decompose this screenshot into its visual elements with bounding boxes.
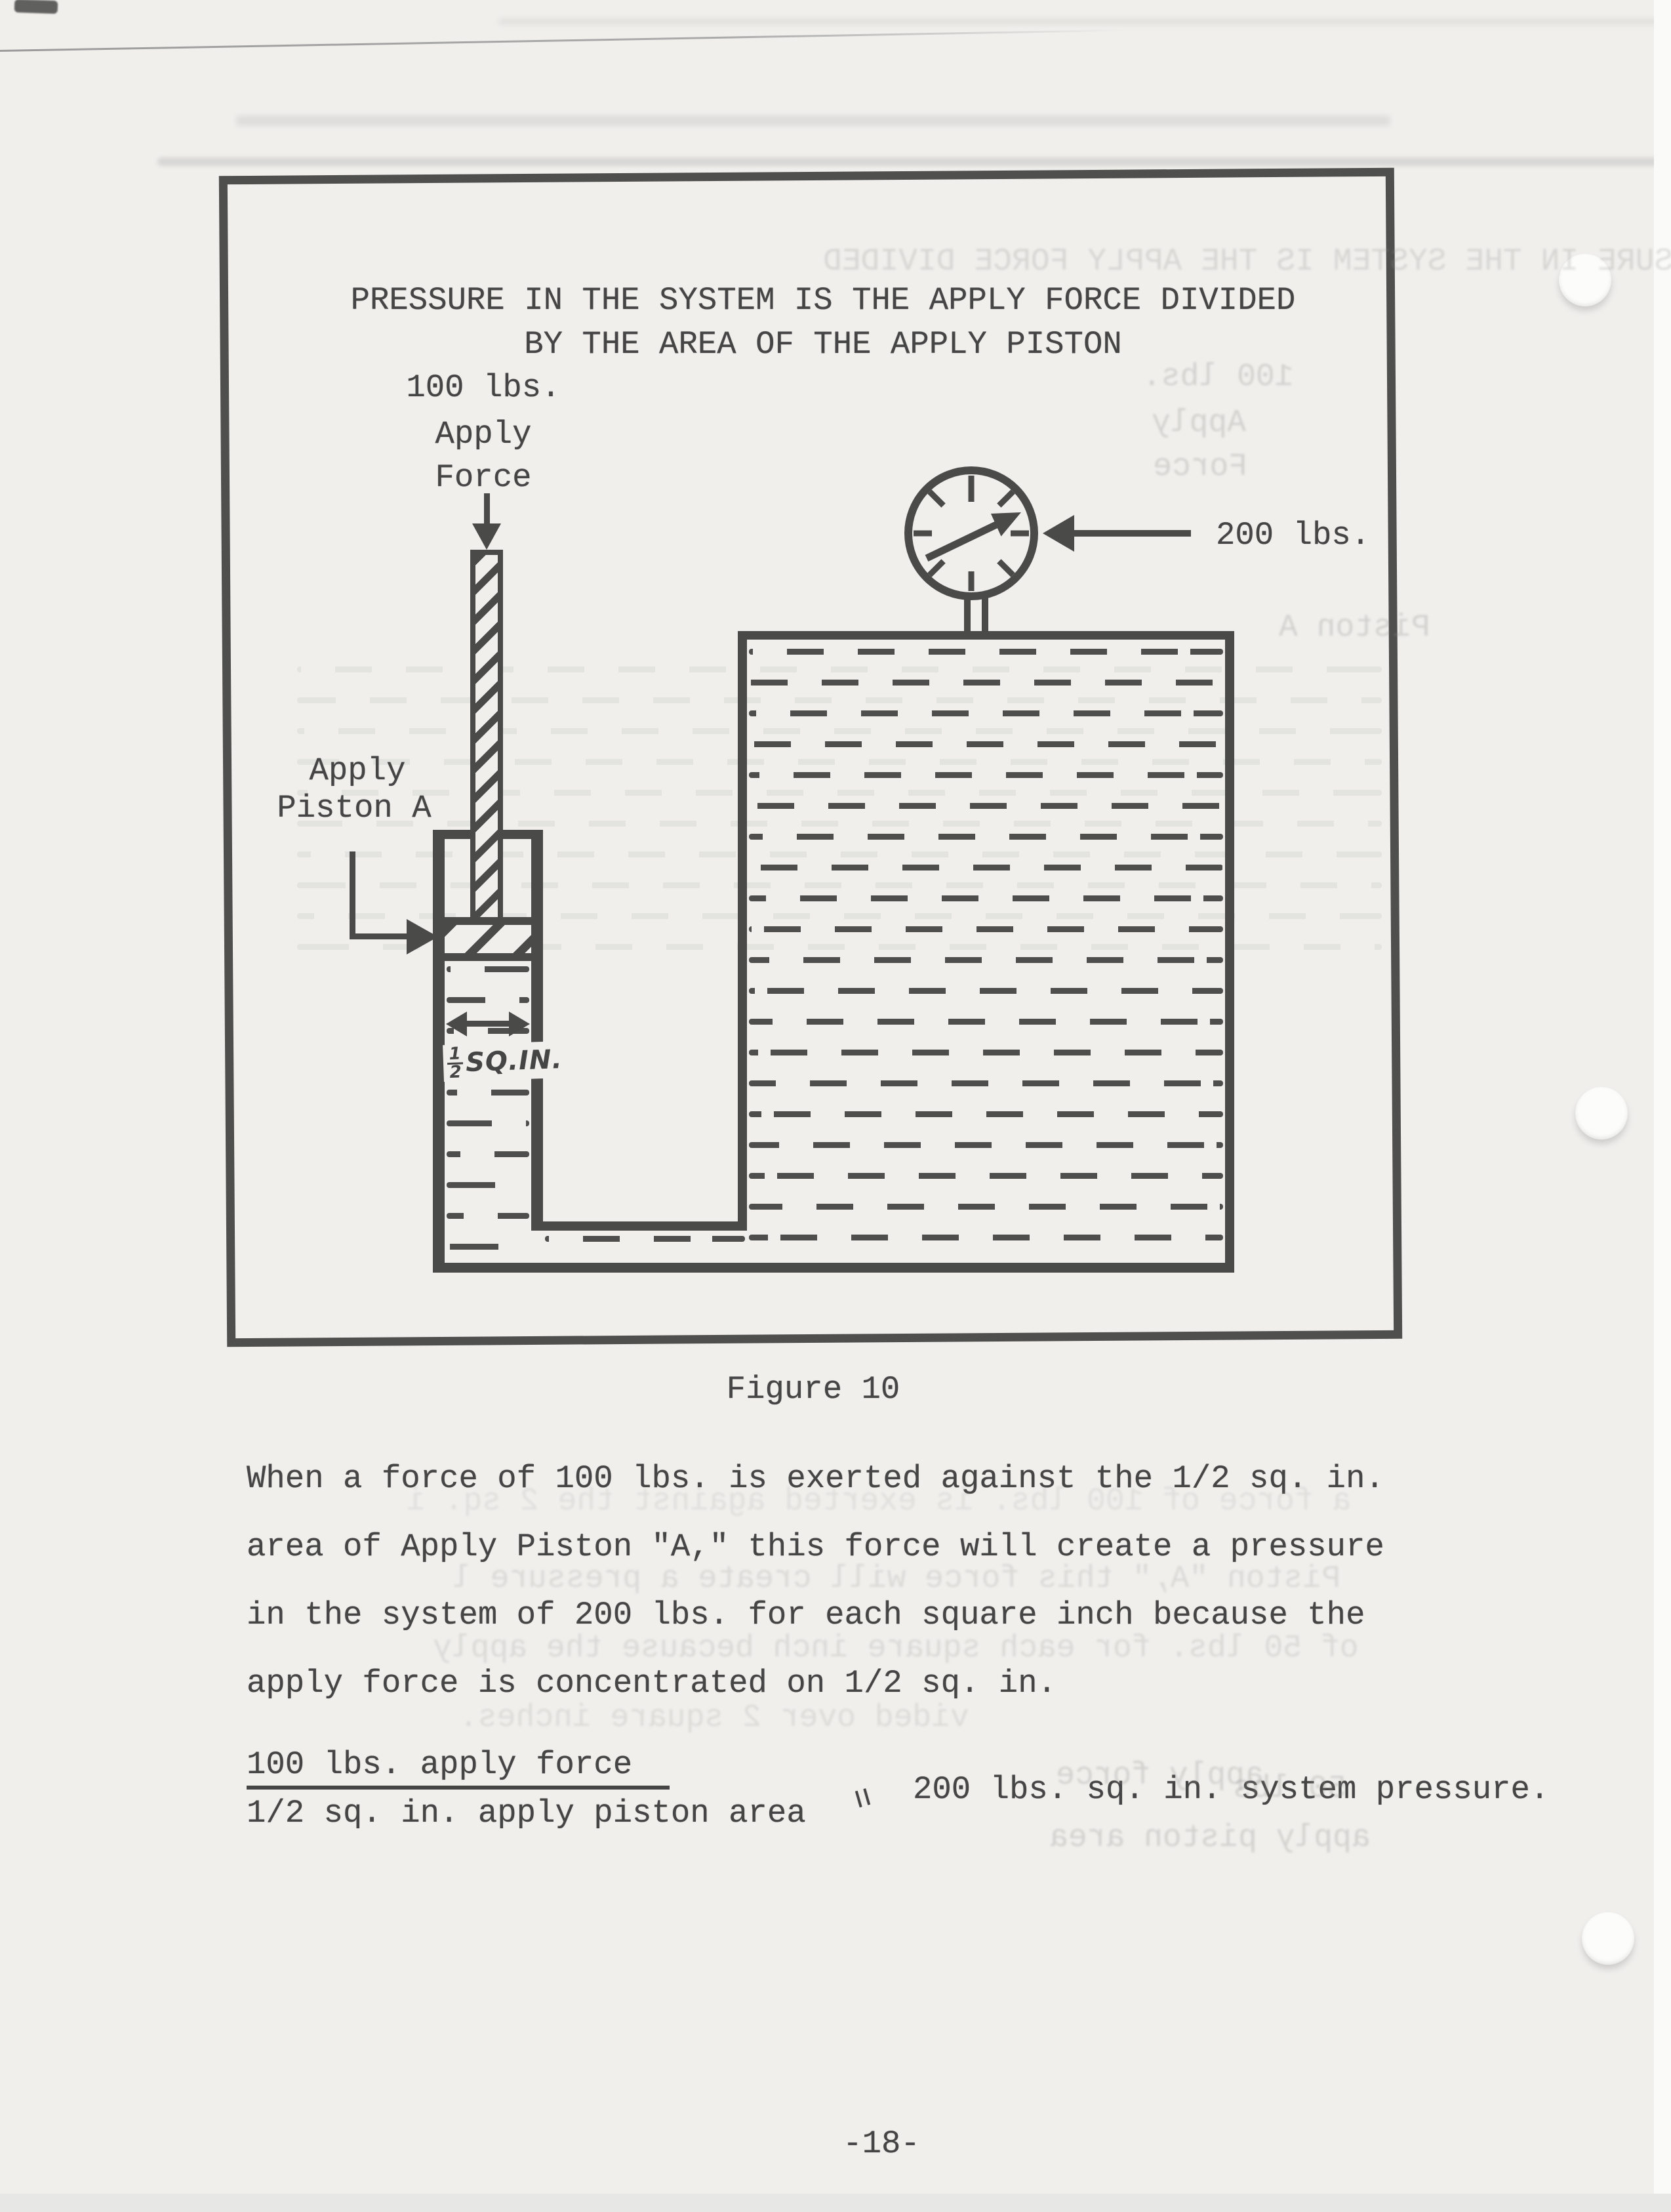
scan-streak — [498, 18, 1666, 25]
gauge-pointer-shaft — [1072, 530, 1191, 537]
apply-force-arrow-shaft — [484, 493, 490, 526]
cylinder-right-wall — [531, 830, 543, 1231]
sq-in-unit: SQ.IN. — [465, 1044, 563, 1078]
piston-pointer-head — [407, 919, 438, 954]
bleed-apply-force: 100 lbs. — [1142, 359, 1293, 396]
pressure-gauge — [899, 461, 1043, 651]
apply-force-label: Force — [435, 459, 531, 496]
bleed-equation: 50 lbs — [1233, 1771, 1346, 1807]
apply-force-label: 100 lbs. — [406, 369, 560, 406]
cylinder-top-cap — [433, 830, 472, 839]
bleed-apply-force: Apply — [1152, 405, 1246, 441]
apply-piston-label: Piston A — [277, 790, 431, 827]
tank-liquid — [747, 645, 1225, 1260]
piston-pointer-vertical — [350, 851, 355, 939]
bottom-band — [0, 2194, 1671, 2212]
gauge-stem — [964, 595, 988, 633]
scanned-page: PRESSURE IN THE SYSTEM IS THE APPLY FORC… — [0, 0, 1671, 2212]
scan-streak — [236, 115, 1390, 126]
apply-piston — [445, 917, 531, 961]
cylinder-top-cap — [501, 830, 543, 839]
equation-fraction-bar — [247, 1786, 670, 1790]
pipe-top-edge — [531, 1221, 747, 1231]
equation-denominator: 1/2 sq. in. apply piston area — [247, 1795, 806, 1832]
piston-area-label: 12 SQ.IN. — [443, 1041, 567, 1082]
bleed-apply-force: Force — [1153, 449, 1247, 485]
paragraph-line: area of Apply Piston "A," this force wil… — [247, 1528, 1384, 1565]
right-edge-strip — [1654, 0, 1671, 2212]
tank-left-wall — [738, 631, 747, 1231]
bleed-paragraph: vided over 2 square inches. — [459, 1700, 969, 1736]
width-arrow-head-right — [509, 1012, 530, 1036]
paper-edge-line — [0, 29, 1128, 52]
equation-equals-sign: = — [839, 1784, 882, 1814]
paragraph-line: apply force is concentrated on 1/2 sq. i… — [247, 1665, 1057, 1702]
bleed-piston-label: Piston A — [1279, 610, 1430, 646]
piston-rod — [470, 550, 503, 924]
bleed-paragraph: of 50 lbs. for each square inch because … — [433, 1631, 1358, 1667]
figure-title-line2: BY THE AREA OF THE APPLY PISTON — [524, 326, 1122, 363]
scan-streak — [157, 157, 1666, 166]
bleed-paragraph: Piston "A," this force will create a pre… — [453, 1561, 1340, 1597]
hole-punch — [1582, 1912, 1634, 1965]
width-arrow-shaft — [462, 1021, 515, 1027]
paragraph-line: in the system of 200 lbs. for each squar… — [247, 1597, 1365, 1633]
hole-punch — [1575, 1087, 1628, 1139]
cylinder-liquid — [445, 962, 531, 1263]
pipe-liquid — [543, 1232, 747, 1261]
width-arrow-head-left — [446, 1012, 467, 1036]
tank-right-wall — [1225, 631, 1234, 1273]
apply-piston-label: Apply — [309, 752, 405, 789]
figure-caption: Figure 10 — [727, 1371, 900, 1408]
apply-force-label: Apply — [435, 416, 531, 453]
piston-pointer-horizontal — [350, 933, 410, 939]
page-number: -18- — [843, 2125, 920, 2162]
corner-mark — [14, 0, 58, 14]
equation-numerator: 100 lbs. apply force — [247, 1746, 632, 1783]
one-half-fraction: 12 — [447, 1046, 464, 1080]
bleed-paragraph: a force of 100 lbs. is exerted against t… — [407, 1484, 1351, 1520]
bleed-title: PRESSURE IN THE SYSTEM IS THE APPLY FORC… — [823, 244, 1671, 280]
bleed-equation: apply piston area — [1049, 1820, 1371, 1856]
figure-title-line1: PRESSURE IN THE SYSTEM IS THE APPLY FORC… — [351, 282, 1296, 319]
gauge-pointer-head — [1043, 515, 1074, 552]
pipe-tank-bottom-edge — [433, 1263, 1234, 1273]
gauge-reading-label: 200 lbs. — [1216, 517, 1370, 554]
apply-force-arrow-head — [472, 523, 501, 550]
